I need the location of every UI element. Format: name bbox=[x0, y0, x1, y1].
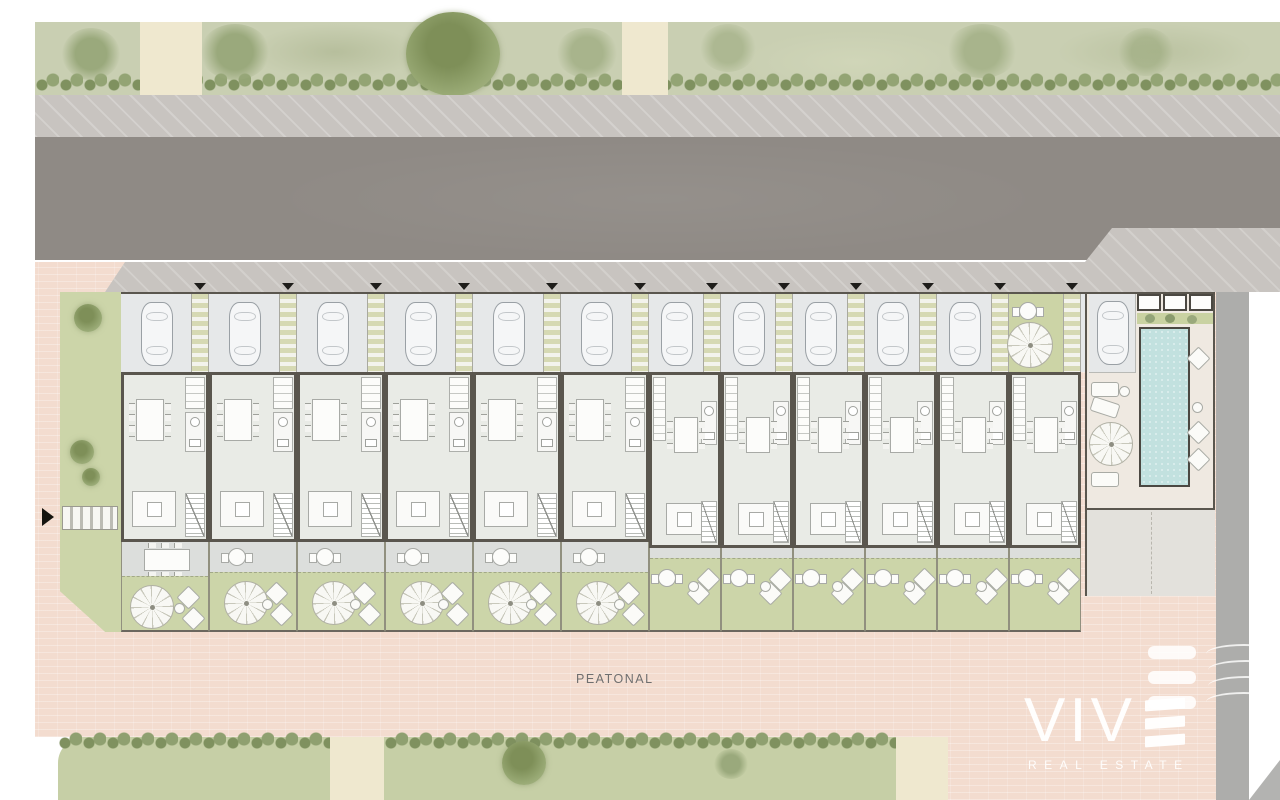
green-walkway bbox=[1063, 294, 1081, 372]
bistro-table-icon bbox=[802, 569, 820, 587]
bathroom-icon bbox=[449, 412, 469, 452]
kitchen-icon bbox=[653, 377, 666, 441]
coffee-table-icon bbox=[821, 512, 836, 527]
green-walkway bbox=[455, 294, 473, 372]
cushion-icon bbox=[1186, 447, 1210, 471]
garden bbox=[297, 542, 385, 632]
stairs-icon bbox=[917, 501, 933, 543]
entrance-arrow-icon bbox=[42, 508, 54, 526]
side-table-icon bbox=[832, 581, 843, 592]
unit-building bbox=[721, 372, 793, 548]
coffee-table-icon bbox=[1037, 512, 1052, 527]
bench-icon bbox=[1148, 646, 1196, 659]
parking-slot bbox=[865, 294, 919, 372]
garden bbox=[561, 542, 649, 632]
coffee-table-icon bbox=[499, 502, 514, 517]
garden bbox=[1009, 548, 1081, 632]
brand-letters: VIV bbox=[1024, 692, 1136, 749]
kitchen-icon bbox=[273, 377, 293, 409]
townhouse-unit bbox=[297, 292, 385, 632]
unit-building bbox=[473, 372, 561, 542]
coffee-table-icon bbox=[323, 502, 338, 517]
coffee-table-icon bbox=[677, 512, 692, 527]
terrace bbox=[386, 542, 472, 572]
green-walkway bbox=[543, 294, 561, 372]
bistro-table-icon bbox=[492, 548, 510, 566]
kitchen-icon bbox=[537, 377, 557, 409]
bistro-table-icon bbox=[404, 548, 422, 566]
coffee-table-icon bbox=[893, 512, 908, 527]
garden-lawn bbox=[474, 572, 560, 630]
unit-building bbox=[649, 372, 721, 548]
terrace bbox=[794, 548, 864, 558]
kitchen-icon bbox=[185, 377, 205, 409]
corner-side-yard bbox=[60, 292, 121, 632]
dining-table-icon bbox=[962, 417, 986, 453]
terrace bbox=[722, 548, 792, 558]
garden bbox=[649, 548, 721, 632]
terrace bbox=[122, 542, 208, 576]
green-walkway bbox=[279, 294, 297, 372]
coffee-table-icon bbox=[587, 502, 602, 517]
entrance-marker-icon bbox=[1066, 283, 1078, 290]
coffee-table-icon bbox=[235, 502, 250, 517]
terrace bbox=[938, 548, 1008, 558]
car-icon bbox=[405, 302, 437, 366]
terrace bbox=[210, 542, 296, 572]
pool-zone bbox=[1085, 292, 1215, 510]
garden-lawn bbox=[562, 572, 648, 630]
kitchen-icon bbox=[361, 377, 381, 409]
townhouse-unit bbox=[721, 292, 793, 632]
garden-lawn bbox=[650, 558, 720, 630]
garden-lawn bbox=[386, 572, 472, 630]
car-icon bbox=[733, 302, 765, 366]
tree-icon bbox=[502, 741, 546, 785]
townhouse-unit bbox=[649, 292, 721, 632]
unit-building bbox=[793, 372, 865, 548]
visitor-parking-slot bbox=[1089, 294, 1136, 373]
townhouse-unit bbox=[121, 292, 209, 632]
cushion-icon bbox=[445, 602, 469, 626]
side-table-icon bbox=[526, 599, 537, 610]
bathroom-icon bbox=[185, 412, 205, 452]
pool-planting-strip bbox=[1137, 313, 1213, 324]
brand-tagline: REAL ESTATE bbox=[1024, 758, 1214, 772]
sofa-icon bbox=[810, 503, 846, 535]
garden bbox=[937, 548, 1009, 632]
side-table-icon bbox=[760, 581, 771, 592]
brand-logo: VIV REAL ESTATE bbox=[1024, 692, 1214, 772]
dining-table-icon bbox=[746, 417, 770, 453]
coffee-table-icon bbox=[965, 512, 980, 527]
swimming-pool bbox=[1139, 327, 1190, 487]
garden bbox=[793, 548, 865, 632]
garden-lawn bbox=[938, 558, 1008, 630]
road bbox=[35, 137, 1280, 260]
entrance-marker-icon bbox=[458, 283, 470, 290]
car-icon bbox=[805, 302, 837, 366]
bathroom-icon bbox=[625, 412, 645, 452]
garden bbox=[721, 548, 793, 632]
service-core bbox=[185, 377, 205, 537]
parasol-icon bbox=[1089, 422, 1133, 466]
garden bbox=[865, 548, 937, 632]
car-icon bbox=[949, 302, 981, 366]
tree-icon bbox=[82, 468, 100, 486]
sofa-icon bbox=[396, 491, 440, 527]
shrub-icon bbox=[1118, 28, 1174, 76]
kitchen-icon bbox=[869, 377, 882, 441]
sofa-icon bbox=[954, 503, 990, 535]
dining-table-icon bbox=[576, 399, 604, 441]
bistro-table-icon bbox=[874, 569, 892, 587]
entrance-marker-icon bbox=[850, 283, 862, 290]
tree-icon bbox=[74, 304, 102, 332]
unit-building bbox=[209, 372, 297, 542]
green-walkway bbox=[847, 294, 865, 372]
bathroom-icon bbox=[273, 412, 293, 452]
green-walkway bbox=[991, 294, 1009, 372]
verge-path bbox=[896, 737, 948, 800]
parking-slot bbox=[793, 294, 847, 372]
brand-wordmark: VIV bbox=[1024, 692, 1214, 749]
car-icon bbox=[317, 302, 349, 366]
south-hedgerow bbox=[384, 731, 896, 751]
townhouse-unit bbox=[1009, 292, 1081, 632]
stairs-icon bbox=[537, 493, 557, 537]
terrace bbox=[298, 542, 384, 572]
dining-table-icon bbox=[312, 399, 340, 441]
townhouse-unit bbox=[793, 292, 865, 632]
side-table-icon bbox=[1119, 386, 1130, 397]
parking-slot bbox=[121, 294, 191, 372]
garden-lawn bbox=[722, 558, 792, 630]
garden-lawn bbox=[1010, 558, 1080, 630]
garden bbox=[121, 542, 209, 632]
terrace bbox=[474, 542, 560, 572]
car-icon bbox=[141, 302, 173, 366]
service-core bbox=[537, 377, 557, 537]
side-table-icon bbox=[262, 599, 273, 610]
car-icon bbox=[581, 302, 613, 366]
sun-lounger-icon bbox=[1091, 382, 1119, 397]
service-core bbox=[361, 377, 381, 537]
townhouse-unit bbox=[561, 292, 649, 632]
sun-lounger-icon bbox=[1089, 396, 1120, 419]
south-hedgerow bbox=[58, 731, 330, 751]
unit-building bbox=[1009, 372, 1081, 548]
unit-building bbox=[297, 372, 385, 542]
bathroom-icon bbox=[537, 412, 557, 452]
stairs-icon bbox=[625, 493, 645, 537]
stairs-icon bbox=[449, 493, 469, 537]
townhouse-unit bbox=[385, 292, 473, 632]
terrace bbox=[562, 542, 648, 572]
unit-building bbox=[865, 372, 937, 548]
unit-building bbox=[121, 372, 209, 542]
stairs-icon bbox=[773, 501, 789, 543]
car-icon bbox=[229, 302, 261, 366]
cushion-icon bbox=[269, 602, 293, 626]
entrance-marker-icon bbox=[194, 283, 206, 290]
terrace bbox=[1010, 548, 1080, 558]
side-table-icon bbox=[904, 581, 915, 592]
stairs-icon bbox=[989, 501, 1005, 543]
hedge-arc-icon bbox=[1206, 692, 1280, 712]
townhouse-unit bbox=[473, 292, 561, 632]
green-walkway bbox=[919, 294, 937, 372]
bistro-table-icon bbox=[1018, 569, 1036, 587]
service-core bbox=[449, 377, 469, 537]
side-table-icon bbox=[1048, 581, 1059, 592]
dining-table-icon bbox=[674, 417, 698, 453]
lane-corner bbox=[1249, 760, 1280, 800]
sofa-icon bbox=[1026, 503, 1062, 535]
parking-slot bbox=[297, 294, 367, 372]
shrub-icon bbox=[700, 24, 756, 72]
bistro-table-icon bbox=[658, 569, 676, 587]
south-green-verge bbox=[384, 737, 896, 800]
shrub-icon bbox=[946, 24, 1018, 78]
side-table-icon bbox=[688, 581, 699, 592]
car-icon bbox=[1097, 301, 1129, 365]
kitchen-icon bbox=[725, 377, 738, 441]
parking-slot bbox=[649, 294, 703, 372]
sofa-icon bbox=[666, 503, 702, 535]
bistro-table-icon bbox=[228, 548, 246, 566]
unit-building bbox=[561, 372, 649, 542]
parasol-icon bbox=[130, 585, 174, 629]
parking-slot bbox=[473, 294, 543, 372]
pool-apron-walk bbox=[1085, 510, 1215, 596]
car-icon bbox=[661, 302, 693, 366]
entrance-marker-icon bbox=[546, 283, 558, 290]
sofa-icon bbox=[220, 491, 264, 527]
car-icon bbox=[877, 302, 909, 366]
garden bbox=[385, 542, 473, 632]
townhouse-unit bbox=[865, 292, 937, 632]
tree-icon bbox=[70, 440, 94, 464]
garden bbox=[209, 542, 297, 632]
sofa-icon bbox=[882, 503, 918, 535]
cushion-icon bbox=[357, 602, 381, 626]
shrub-icon bbox=[556, 28, 618, 78]
cushion-icon bbox=[1186, 420, 1210, 444]
dining-table-icon bbox=[890, 417, 914, 453]
green-walkway bbox=[775, 294, 793, 372]
dining-table-icon bbox=[136, 399, 164, 441]
parking-slot bbox=[937, 294, 991, 372]
garden-lawn bbox=[122, 576, 208, 630]
stairs-icon bbox=[1061, 501, 1077, 543]
dining-table-icon bbox=[1034, 417, 1058, 453]
shrub-icon bbox=[200, 24, 270, 80]
side-table-icon bbox=[1192, 402, 1203, 413]
kitchen-icon bbox=[1013, 377, 1026, 441]
side-access-lane bbox=[1216, 228, 1249, 800]
stairs-icon bbox=[273, 493, 293, 537]
coffee-table-icon bbox=[147, 502, 162, 517]
cushion-icon bbox=[181, 606, 205, 630]
coffee-table-icon bbox=[749, 512, 764, 527]
sofa-icon bbox=[738, 503, 774, 535]
bistro-table-icon bbox=[1019, 302, 1037, 320]
dining-table-icon bbox=[818, 417, 842, 453]
terrace bbox=[866, 548, 936, 558]
coffee-table-icon bbox=[411, 502, 426, 517]
street-label: PEATONAL bbox=[576, 672, 654, 686]
car-icon bbox=[493, 302, 525, 366]
bistro-table-icon bbox=[580, 548, 598, 566]
garden-lawn bbox=[298, 572, 384, 630]
entrance-marker-icon bbox=[634, 283, 646, 290]
green-walkway bbox=[191, 294, 209, 372]
terrace bbox=[650, 548, 720, 558]
stairs-icon bbox=[701, 501, 717, 543]
site-plan: PEATONAL VIV REAL ESTATE bbox=[0, 0, 1280, 800]
parking-slot bbox=[561, 294, 631, 372]
entrance-marker-icon bbox=[994, 283, 1006, 290]
shrub-icon bbox=[62, 28, 120, 80]
service-core bbox=[625, 377, 645, 537]
dining-table-icon bbox=[488, 399, 516, 441]
stairs-icon bbox=[185, 493, 205, 537]
entrance-marker-icon bbox=[778, 283, 790, 290]
sofa-icon bbox=[132, 491, 176, 527]
side-table-icon bbox=[614, 599, 625, 610]
bistro-table-icon bbox=[316, 548, 334, 566]
sofa-icon bbox=[484, 491, 528, 527]
townhouse-unit bbox=[209, 292, 297, 632]
parking-slot bbox=[385, 294, 455, 372]
bench-icon bbox=[1148, 671, 1196, 684]
side-table-icon bbox=[174, 603, 185, 614]
sidewalk-north bbox=[35, 95, 1280, 137]
sun-lounger-icon bbox=[1091, 472, 1119, 487]
bathroom-icon bbox=[361, 412, 381, 452]
garden-dining-table-icon bbox=[144, 549, 190, 571]
verge-path bbox=[330, 737, 384, 800]
brand-e-bars-icon bbox=[1145, 698, 1185, 748]
sofa-icon bbox=[572, 491, 616, 527]
parking-slot bbox=[209, 294, 279, 372]
pool-storage-boxes bbox=[1137, 294, 1213, 311]
kitchen-icon bbox=[449, 377, 469, 409]
parasol-icon bbox=[1007, 322, 1053, 368]
tree-icon bbox=[406, 12, 500, 96]
parking-slot bbox=[1009, 294, 1063, 372]
dining-table-icon bbox=[400, 399, 428, 441]
garden-lawn bbox=[210, 572, 296, 630]
side-table-icon bbox=[438, 599, 449, 610]
bistro-table-icon bbox=[730, 569, 748, 587]
entrance-marker-icon bbox=[282, 283, 294, 290]
sofa-icon bbox=[308, 491, 352, 527]
kitchen-icon bbox=[797, 377, 810, 441]
garden bbox=[473, 542, 561, 632]
side-table-icon bbox=[976, 581, 987, 592]
cushion-icon bbox=[621, 602, 645, 626]
green-walkway bbox=[703, 294, 721, 372]
townhouse-unit bbox=[937, 292, 1009, 632]
entrance-marker-icon bbox=[706, 283, 718, 290]
garden-lawn bbox=[866, 558, 936, 630]
cushion-icon bbox=[1186, 346, 1210, 370]
garden-lawn bbox=[794, 558, 864, 630]
verge-path bbox=[140, 22, 202, 95]
unit-building bbox=[937, 372, 1009, 548]
unit-building bbox=[385, 372, 473, 542]
cushion-icon bbox=[533, 602, 557, 626]
service-core bbox=[273, 377, 293, 537]
shrub-icon bbox=[714, 749, 748, 779]
bistro-table-icon bbox=[946, 569, 964, 587]
kitchen-icon bbox=[625, 377, 645, 409]
parking-slot bbox=[721, 294, 775, 372]
stairs-icon bbox=[361, 493, 381, 537]
entrance-marker-icon bbox=[370, 283, 382, 290]
side-table-icon bbox=[350, 599, 361, 610]
south-green-verge bbox=[58, 737, 330, 800]
kitchen-icon bbox=[941, 377, 954, 441]
verge-path bbox=[622, 22, 668, 95]
green-walkway bbox=[367, 294, 385, 372]
pedestrian-crossing bbox=[62, 506, 118, 530]
stairs-icon bbox=[845, 501, 861, 543]
entrance-marker-icon bbox=[922, 283, 934, 290]
dining-table-icon bbox=[224, 399, 252, 441]
green-walkway bbox=[631, 294, 649, 372]
